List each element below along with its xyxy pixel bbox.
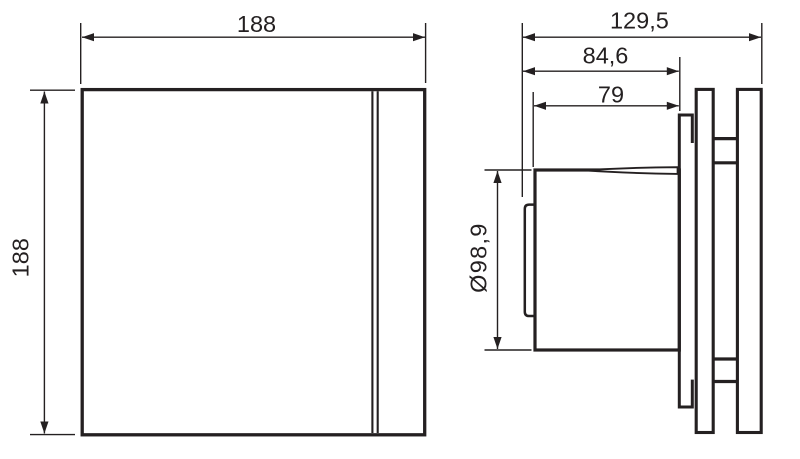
svg-text:Ø98,9: Ø98,9 <box>466 222 492 293</box>
svg-text:84,6: 84,6 <box>583 42 629 68</box>
svg-text:129,5: 129,5 <box>610 7 669 33</box>
svg-text:188: 188 <box>7 238 33 277</box>
svg-text:188: 188 <box>237 11 276 37</box>
svg-text:79: 79 <box>598 82 624 108</box>
